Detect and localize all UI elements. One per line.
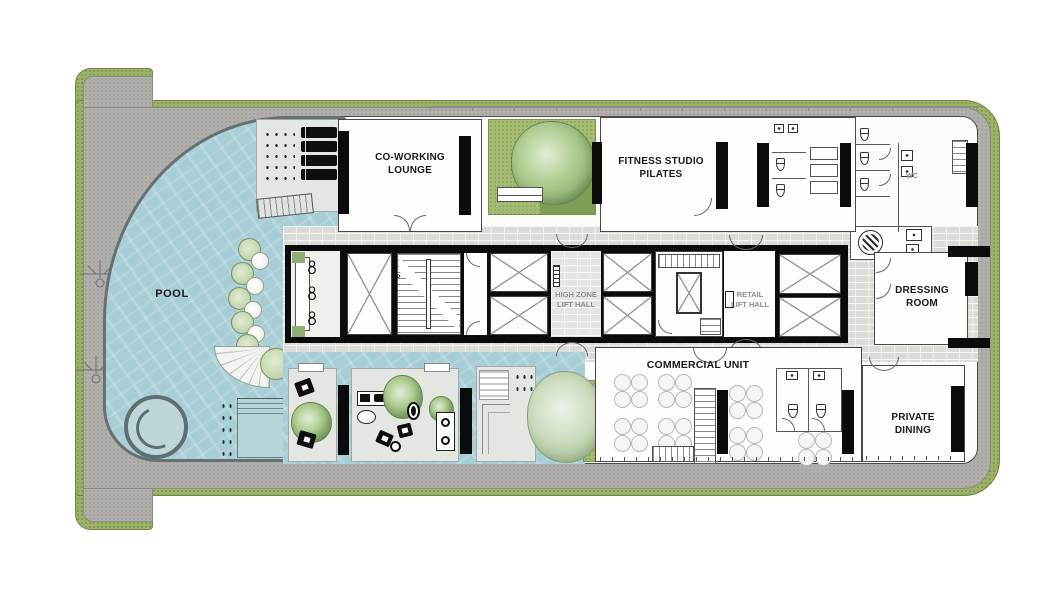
lift-shaft <box>779 297 841 337</box>
equipment-ladder <box>553 265 560 287</box>
wall-bar <box>965 262 978 296</box>
dining-table-icon <box>658 374 691 407</box>
bench-icon <box>497 187 543 202</box>
lift-shaft <box>490 296 548 335</box>
high-zone-lift-hall-label: HIGH ZONE LIFT HALL <box>545 290 607 310</box>
pool-label: POOL <box>148 288 196 302</box>
planter-icon <box>298 363 324 372</box>
private-dining-label: PRIVATE DINING <box>868 412 958 437</box>
sink-icon <box>901 150 913 161</box>
wall-bar <box>840 143 851 207</box>
sun-lounger-icon <box>301 141 337 152</box>
partition-wall <box>808 368 809 432</box>
side-table-icon <box>390 441 401 452</box>
dining-table-icon <box>614 374 647 407</box>
pool-dot-paving <box>220 400 233 456</box>
person-icon <box>308 260 316 274</box>
wall-bar <box>948 246 990 257</box>
wall-bar <box>460 388 472 454</box>
dining-table-icon <box>614 418 647 451</box>
massage-bed-icon <box>810 147 838 160</box>
massage-bed-icon <box>810 164 838 177</box>
partition-wall <box>856 170 890 171</box>
floor-plan: POOL <box>0 0 1063 592</box>
planter-icon <box>292 252 305 263</box>
window-ticks <box>866 456 961 460</box>
planter-icon <box>424 363 450 372</box>
commercial-unit-label: COMMERCIAL UNIT <box>623 359 773 372</box>
retail-lift-hall-label: RETAIL LIFT HALL <box>719 290 781 310</box>
person-icon <box>308 311 316 325</box>
wall-bar <box>948 338 990 348</box>
partition-wall <box>856 196 890 197</box>
equipment-box <box>906 229 922 241</box>
sun-lounger-icon <box>301 127 337 138</box>
person-icon <box>308 286 316 300</box>
terrace-planter-box <box>488 412 510 454</box>
console-item <box>360 394 370 402</box>
up-label: UP <box>386 274 406 282</box>
stair-core-box <box>676 272 702 314</box>
bar-stool-icon <box>441 418 450 427</box>
wall-bar <box>757 143 769 207</box>
partition-wall <box>856 144 890 145</box>
sink-icon <box>786 371 798 380</box>
dining-table-icon <box>729 427 762 460</box>
wall-bar <box>966 143 978 207</box>
dimension-line <box>430 106 982 111</box>
fitness-studio-label: FITNESS STUDIO PILATES <box>600 156 722 181</box>
tree-icon <box>527 371 605 463</box>
lift-shaft <box>779 254 841 294</box>
partition-wall <box>898 143 899 232</box>
platform-dot-paving <box>263 129 295 181</box>
lift-shaft <box>603 296 652 335</box>
dressing-room-label: DRESSING ROOM <box>878 285 966 310</box>
lift-shaft <box>603 253 652 292</box>
lift-shaft <box>347 253 392 335</box>
rug-icon <box>357 410 376 424</box>
wall-bar <box>842 390 854 454</box>
wc-label: WC <box>900 172 924 181</box>
lift-shaft <box>490 253 548 292</box>
wall-bar <box>338 385 349 455</box>
stair-icon <box>700 318 721 335</box>
sink-icon <box>788 124 798 133</box>
partition-wall <box>772 152 806 153</box>
stair-rail <box>426 259 431 329</box>
wall-bar <box>717 390 728 454</box>
shrub-icon <box>251 252 269 270</box>
stair-icon <box>694 388 716 464</box>
lounge-pod-icon <box>407 402 420 420</box>
bar-stool-icon <box>441 436 450 445</box>
sun-lounger-icon <box>301 169 337 180</box>
coworking-lounge-label: CO-WORKING LOUNGE <box>348 152 472 177</box>
sink-icon <box>774 124 784 133</box>
window-ticks <box>600 457 858 461</box>
sink-icon <box>813 371 825 380</box>
terrace-dot-paving <box>514 371 534 395</box>
pool-bench-steps <box>237 398 287 414</box>
planter-slats <box>479 370 509 400</box>
escalator-icon <box>658 254 720 268</box>
planter-icon <box>292 326 305 337</box>
massage-bed-icon <box>810 181 838 194</box>
dining-table-icon <box>729 385 762 418</box>
sun-lounger-icon <box>301 155 337 166</box>
partition-wall <box>772 178 806 179</box>
